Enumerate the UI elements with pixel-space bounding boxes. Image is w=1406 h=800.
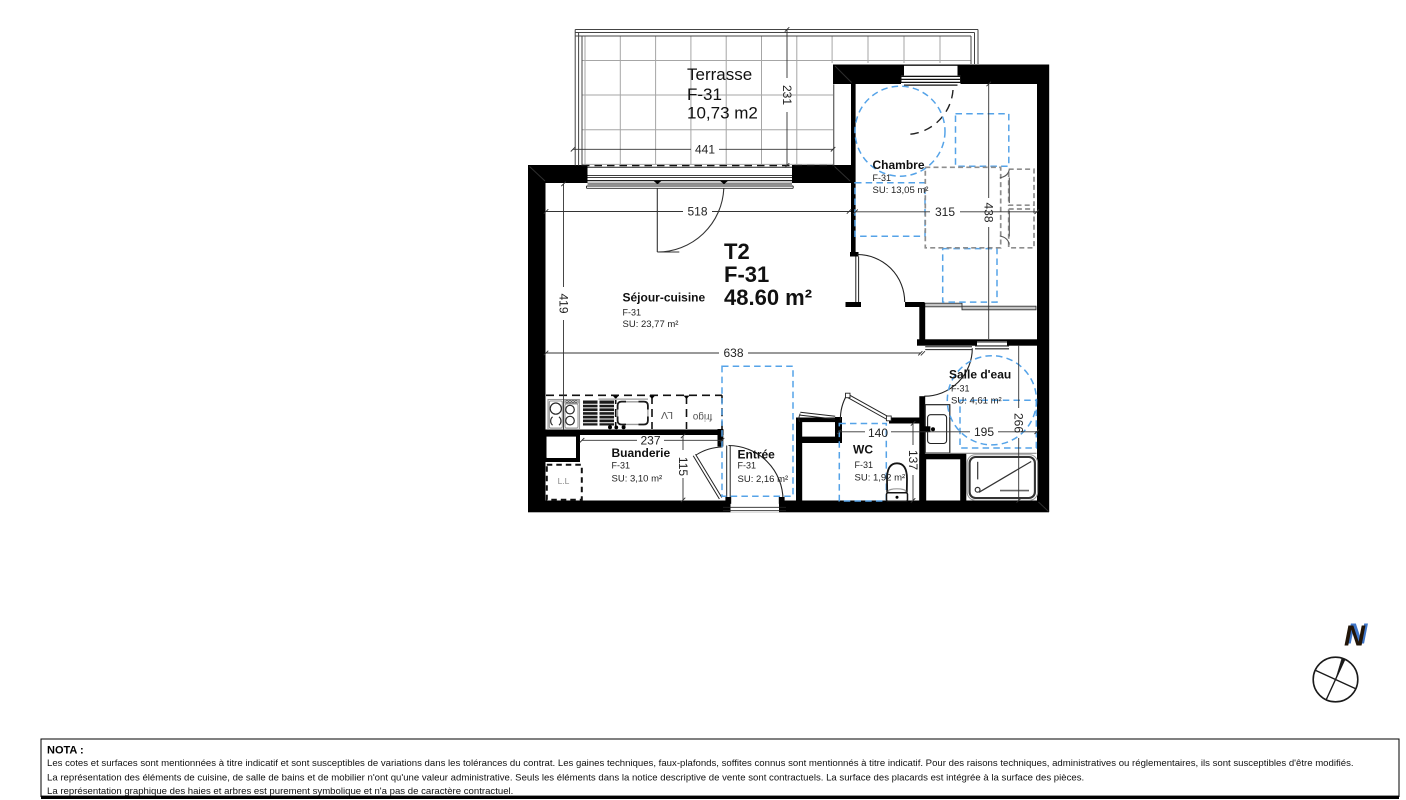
svg-text:10,73 m2: 10,73 m2 <box>687 104 758 123</box>
svg-text:231: 231 <box>780 85 794 105</box>
svg-text:F-31: F-31 <box>738 461 757 471</box>
svg-text:140: 140 <box>868 426 888 440</box>
svg-text:Séjour-cuisine: Séjour-cuisine <box>623 291 706 305</box>
svg-text:SU: 1,92 m²: SU: 1,92 m² <box>855 473 906 484</box>
svg-text:SU: 13,05 m²: SU: 13,05 m² <box>873 185 929 196</box>
svg-text:315: 315 <box>935 205 955 219</box>
svg-text:Entrée: Entrée <box>738 448 776 462</box>
svg-text:F-31: F-31 <box>873 173 892 183</box>
svg-text:F-31: F-31 <box>855 460 874 470</box>
svg-text:frigo: frigo <box>692 411 712 422</box>
svg-text:WC: WC <box>853 443 873 457</box>
svg-text:266: 266 <box>1012 413 1026 433</box>
svg-text:NOTA :: NOTA : <box>47 745 84 757</box>
svg-text:48.60 m²: 48.60 m² <box>724 285 812 310</box>
svg-text:La représentation des éléments: La représentation des éléments de cuisin… <box>47 773 1084 784</box>
svg-text:F-31: F-31 <box>724 262 769 287</box>
svg-text:L.L: L.L <box>558 476 570 486</box>
svg-text:N: N <box>1344 621 1366 653</box>
svg-text:T2: T2 <box>724 239 750 264</box>
svg-text:F-31: F-31 <box>951 384 970 394</box>
svg-text:SU: 23,77 m²: SU: 23,77 m² <box>623 319 679 330</box>
svg-text:419: 419 <box>557 293 571 313</box>
svg-text:Terrasse: Terrasse <box>687 65 752 84</box>
svg-text:638: 638 <box>723 346 743 360</box>
svg-text:LV: LV <box>661 409 673 421</box>
svg-text:441: 441 <box>695 143 715 157</box>
svg-text:SU: 4,61 m²: SU: 4,61 m² <box>951 396 1002 407</box>
svg-text:F-31: F-31 <box>687 85 722 104</box>
svg-text:115: 115 <box>676 457 690 476</box>
svg-text:F-31: F-31 <box>612 461 631 471</box>
svg-text:Les cotes et surfaces sont men: Les cotes et surfaces sont mentionnées à… <box>47 758 1354 769</box>
svg-text:137: 137 <box>906 450 920 470</box>
svg-text:Buanderie: Buanderie <box>612 446 671 460</box>
svg-text:195: 195 <box>974 425 994 439</box>
svg-text:438: 438 <box>982 202 996 222</box>
svg-text:La représentation graphique de: La représentation graphique des haies et… <box>47 786 513 797</box>
svg-text:F-31: F-31 <box>623 308 642 318</box>
svg-text:518: 518 <box>687 205 707 219</box>
svg-text:Chambre: Chambre <box>873 158 925 172</box>
svg-text:SU: 3,10 m²: SU: 3,10 m² <box>612 474 663 485</box>
svg-text:Salle d'eau: Salle d'eau <box>949 368 1011 382</box>
svg-text:SU: 2,16 m²: SU: 2,16 m² <box>738 474 789 485</box>
